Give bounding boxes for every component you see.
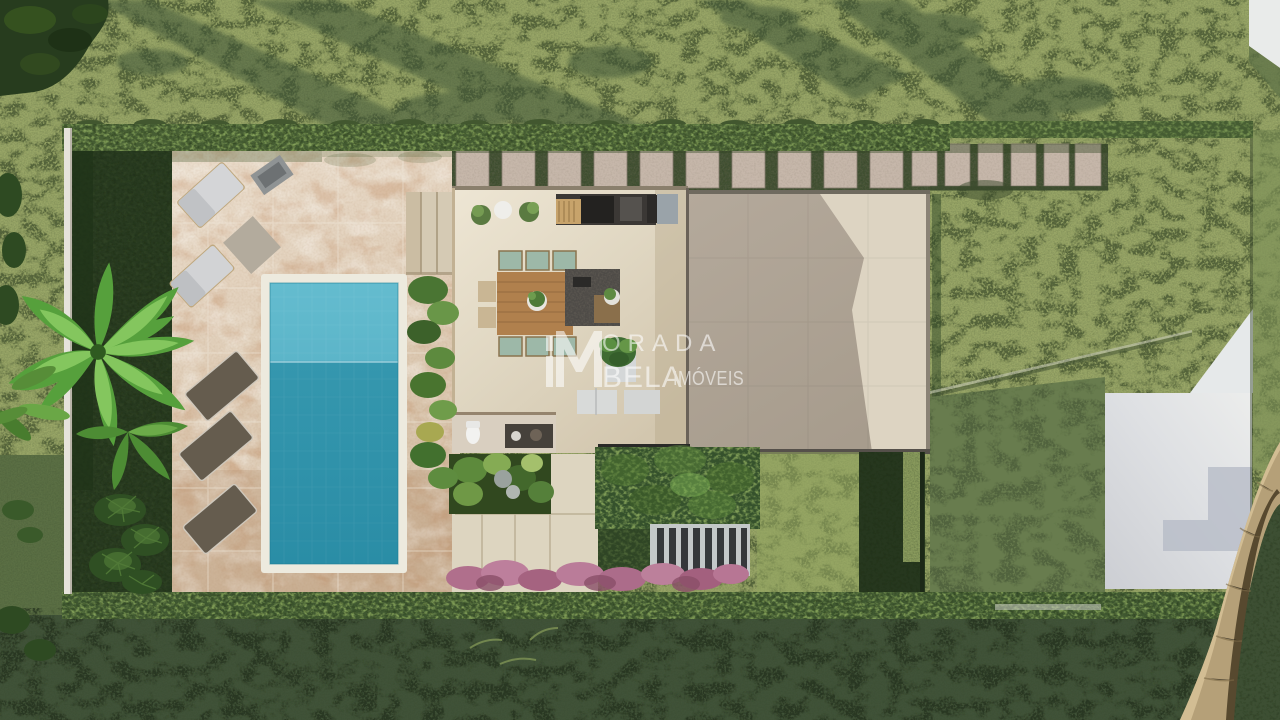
svg-text:ORADA: ORADA [602,330,722,357]
svg-text:IMÓVEIS: IMÓVEIS [673,366,744,389]
svg-text:BELA: BELA [602,361,683,394]
